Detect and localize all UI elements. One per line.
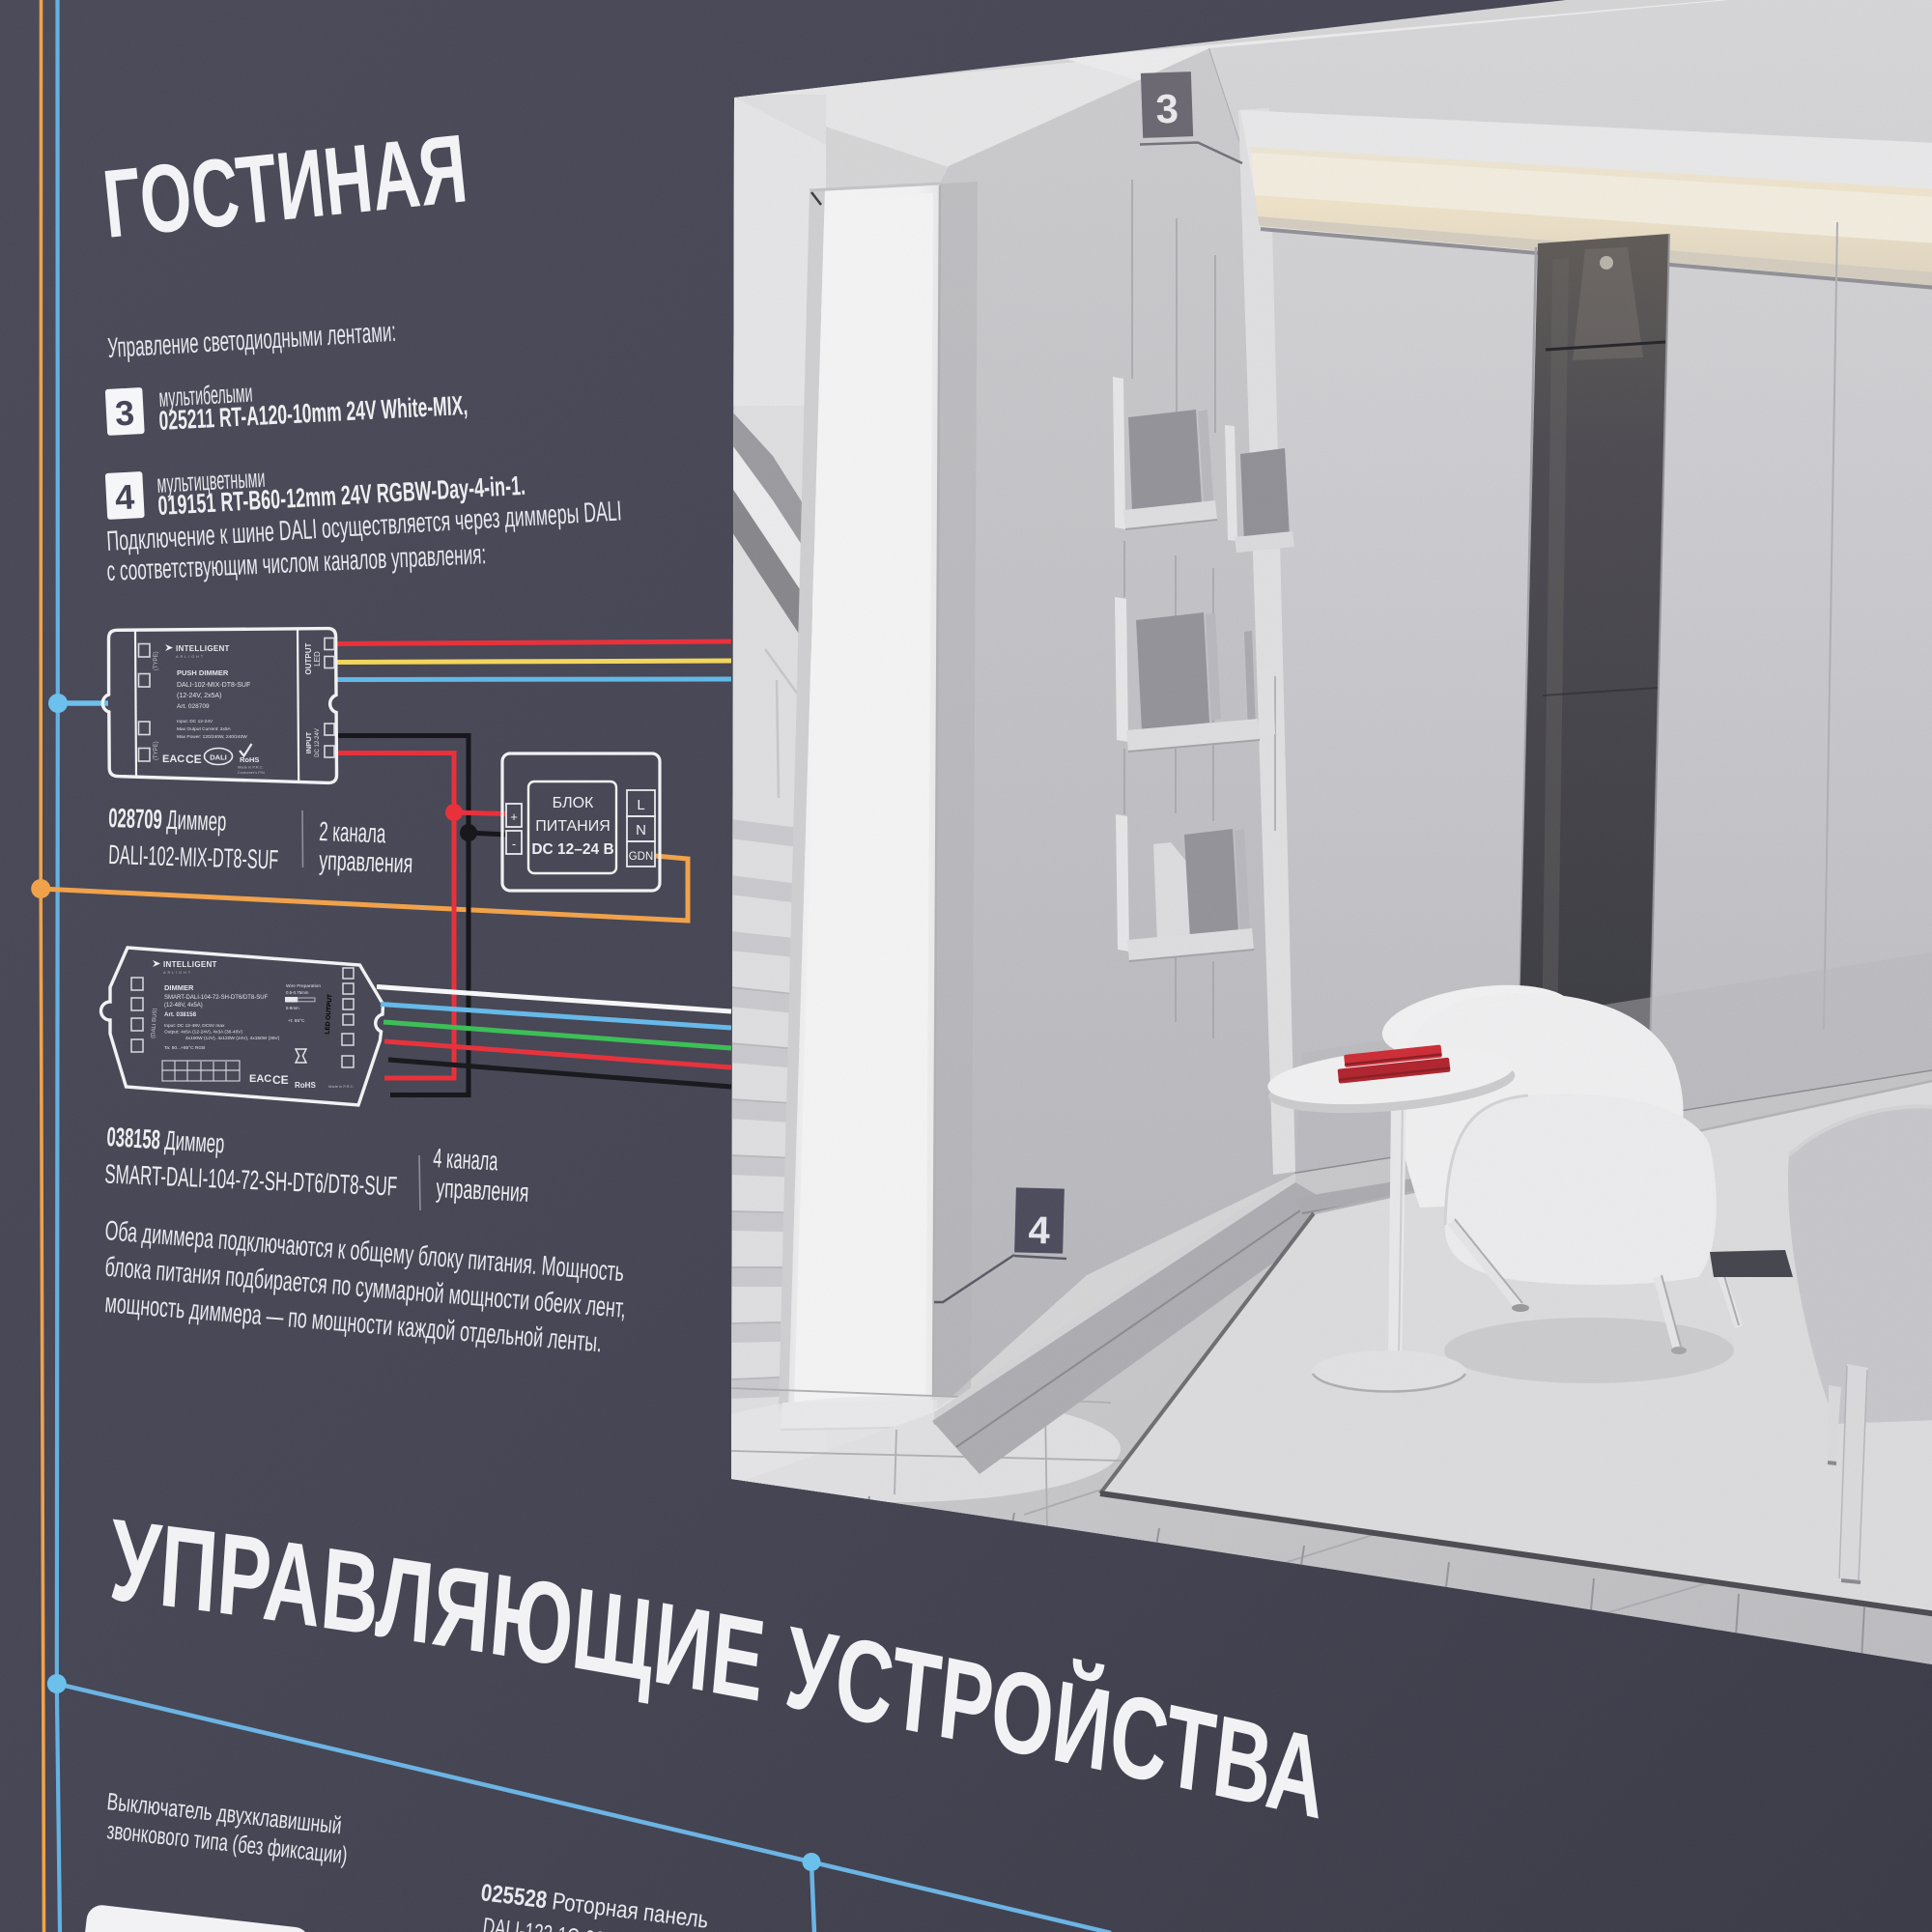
- svg-text:(TYPE): (TYPE): [154, 741, 159, 760]
- svg-text:DALI-102-MIX-DT8-SUF: DALI-102-MIX-DT8-SUF: [108, 839, 279, 875]
- svg-text:028709 Диммер: 028709 Диммер: [108, 803, 227, 837]
- svg-text:L: L: [637, 797, 644, 813]
- svg-text:GDN: GDN: [629, 851, 654, 863]
- svg-text:Output: 4x5A (12-24V), 4x3A (3: Output: 4x5A (12-24V), 4x3A (36-48V): [164, 1030, 242, 1036]
- svg-text:Input: DC 12-24V: Input: DC 12-24V: [177, 719, 213, 724]
- svg-text:EAC: EAC: [249, 1073, 271, 1085]
- svg-text:SMART-DALI-104-72-SH-DT6/DT8-S: SMART-DALI-104-72-SH-DT6/DT8-SUF: [164, 995, 269, 1001]
- svg-text:4x100W (12V), 4x120W (24V), 4x: 4x100W (12V), 4x120W (24V), 4x150W (36V): [185, 1036, 280, 1041]
- svg-text:DALI-102-MIX-DT8-SUF: DALI-102-MIX-DT8-SUF: [177, 682, 250, 689]
- svg-text:(12-24V, 2x5A): (12-24V, 2x5A): [177, 693, 221, 699]
- svg-text:INPUT: INPUT: [304, 731, 313, 753]
- svg-text:CE: CE: [272, 1073, 289, 1087]
- svg-text:Ta: 50...+85°C RGB: Ta: 50...+85°C RGB: [164, 1045, 205, 1051]
- svg-text:ПИТАНИЯ: ПИТАНИЯ: [535, 818, 611, 835]
- svg-text:OUTPUT: OUTPUT: [304, 642, 313, 674]
- svg-text:Made in P.R.C.: Made in P.R.C.: [328, 1084, 355, 1089]
- svg-text:БЛОК: БЛОК: [553, 795, 594, 811]
- svg-text:3: 3: [114, 393, 135, 434]
- svg-text:RoHS: RoHS: [295, 1081, 316, 1090]
- svg-text:-: -: [512, 837, 516, 851]
- svg-text:(TYPE): (TYPE): [154, 651, 159, 670]
- svg-text:Customer's P/N: Customer's P/N: [238, 770, 265, 775]
- svg-text:PUSH DIMMER: PUSH DIMMER: [177, 668, 229, 677]
- svg-text:управления: управления: [319, 845, 413, 878]
- svg-text:2 канала: 2 канала: [319, 816, 386, 848]
- svg-text:Art. 038158: Art. 038158: [164, 1011, 197, 1018]
- svg-text:ARLIGHT: ARLIGHT: [163, 970, 192, 975]
- svg-text:Max Power: 120/240W, 240/240W: Max Power: 120/240W, 240/240W: [177, 734, 247, 740]
- svg-text:DC 12–24 В: DC 12–24 В: [531, 841, 613, 858]
- svg-text:N: N: [636, 822, 646, 838]
- svg-text:Input: DC 12-48V, DC5V max: Input: DC 12-48V, DC5V max: [164, 1023, 225, 1029]
- svg-text:+t: 85°C: +t: 85°C: [288, 1018, 305, 1024]
- svg-text:LED: LED: [313, 651, 322, 667]
- svg-text:+: +: [510, 810, 518, 824]
- svg-text:RoHS: RoHS: [240, 755, 259, 764]
- svg-text:(12-48V, 4x5A): (12-48V, 4x5A): [164, 1003, 203, 1009]
- svg-text:EAC: EAC: [162, 753, 185, 765]
- svg-text:INTELLIGENT: INTELLIGENT: [163, 960, 217, 969]
- svg-text:DC 12-24V: DC 12-24V: [315, 728, 321, 757]
- svg-text:6-8mm: 6-8mm: [286, 1006, 299, 1010]
- svg-text:Art. 028709: Art. 028709: [177, 703, 210, 710]
- svg-text:INTELLIGENT: INTELLIGENT: [176, 644, 230, 653]
- svg-text:DALI: DALI: [210, 753, 227, 762]
- svg-text:CE: CE: [185, 753, 202, 766]
- svg-text:управления: управления: [436, 1173, 529, 1207]
- svg-text:0.5-0.75mm: 0.5-0.75mm: [286, 990, 309, 995]
- svg-text:Wire Preparation: Wire Preparation: [286, 983, 321, 989]
- svg-text:DIMMER: DIMMER: [164, 983, 194, 992]
- svg-text:Made in P.R.C.: Made in P.R.C.: [238, 765, 264, 770]
- svg-text:ARLIGHT: ARLIGHT: [176, 654, 205, 659]
- svg-text:4: 4: [114, 477, 135, 518]
- svg-text:4 канала: 4 канала: [433, 1143, 499, 1176]
- svg-text:Max Output Current: 2x5A: Max Output Current: 2x5A: [177, 726, 232, 732]
